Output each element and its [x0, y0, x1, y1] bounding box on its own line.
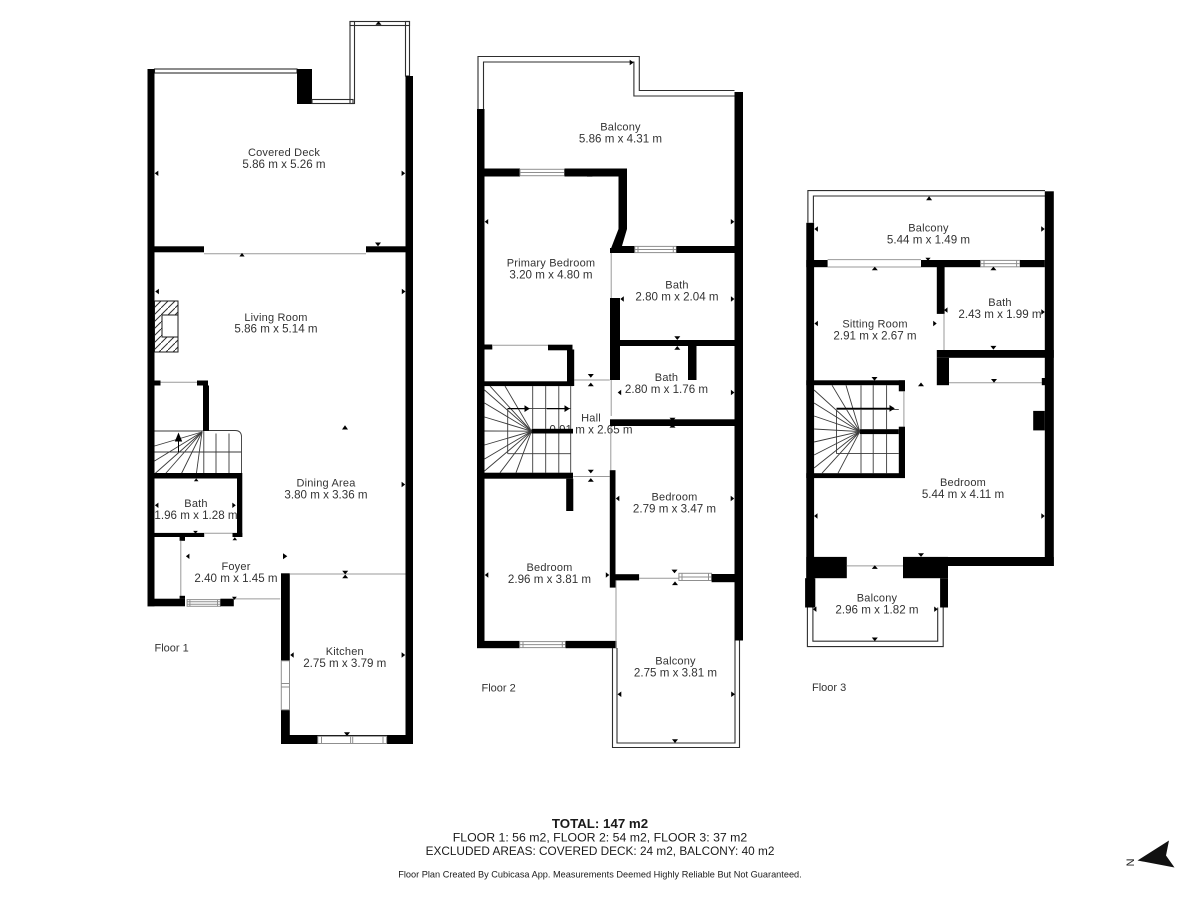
- svg-text:TOTAL: 147 m2: TOTAL: 147 m2: [552, 816, 648, 831]
- svg-text:5.86 m x 5.26 m: 5.86 m x 5.26 m: [242, 158, 325, 171]
- svg-text:5.86 m x 5.14 m: 5.86 m x 5.14 m: [234, 323, 317, 336]
- svg-text:Floor Plan Created By Cubicasa: Floor Plan Created By Cubicasa App. Meas…: [398, 870, 801, 880]
- svg-text:Floor 3: Floor 3: [812, 682, 846, 694]
- svg-text:3.80 m x 3.36 m: 3.80 m x 3.36 m: [284, 489, 367, 502]
- svg-text:Floor 1: Floor 1: [155, 643, 189, 655]
- svg-text:2.43 m x 1.99 m: 2.43 m x 1.99 m: [958, 308, 1041, 321]
- svg-text:2.96 m x 1.82 m: 2.96 m x 1.82 m: [835, 604, 918, 617]
- svg-text:5.44 m x 1.49 m: 5.44 m x 1.49 m: [887, 234, 970, 247]
- svg-text:5.86 m x 4.31 m: 5.86 m x 4.31 m: [579, 133, 662, 146]
- svg-text:2.80 m x 2.04 m: 2.80 m x 2.04 m: [635, 291, 718, 304]
- svg-text:2.80 m x 1.76 m: 2.80 m x 1.76 m: [625, 383, 708, 396]
- svg-text:2.79 m x 3.47 m: 2.79 m x 3.47 m: [633, 503, 716, 516]
- svg-text:EXCLUDED AREAS: COVERED DECK:: EXCLUDED AREAS: COVERED DECK: 24 m2, BAL…: [426, 844, 775, 858]
- svg-text:Floor 2: Floor 2: [482, 683, 516, 695]
- svg-text:2.75 m x 3.79 m: 2.75 m x 3.79 m: [303, 657, 386, 670]
- svg-text:2.40 m x 1.45 m: 2.40 m x 1.45 m: [194, 572, 277, 585]
- svg-text:1.96 m x 1.28 m: 1.96 m x 1.28 m: [154, 509, 237, 522]
- svg-text:N: N: [1124, 859, 1136, 867]
- svg-text:FLOOR 1: 56 m2, FLOOR 2: 54 m2: FLOOR 1: 56 m2, FLOOR 2: 54 m2, FLOOR 3:…: [453, 830, 748, 844]
- svg-text:2.96 m x 3.81 m: 2.96 m x 3.81 m: [508, 573, 591, 586]
- svg-text:5.44 m x 4.11 m: 5.44 m x 4.11 m: [922, 488, 1004, 501]
- svg-text:2.91 m x 2.67 m: 2.91 m x 2.67 m: [833, 329, 916, 342]
- svg-text:3.20 m x 4.80 m: 3.20 m x 4.80 m: [509, 269, 592, 282]
- svg-text:2.75 m x 3.81 m: 2.75 m x 3.81 m: [634, 667, 717, 680]
